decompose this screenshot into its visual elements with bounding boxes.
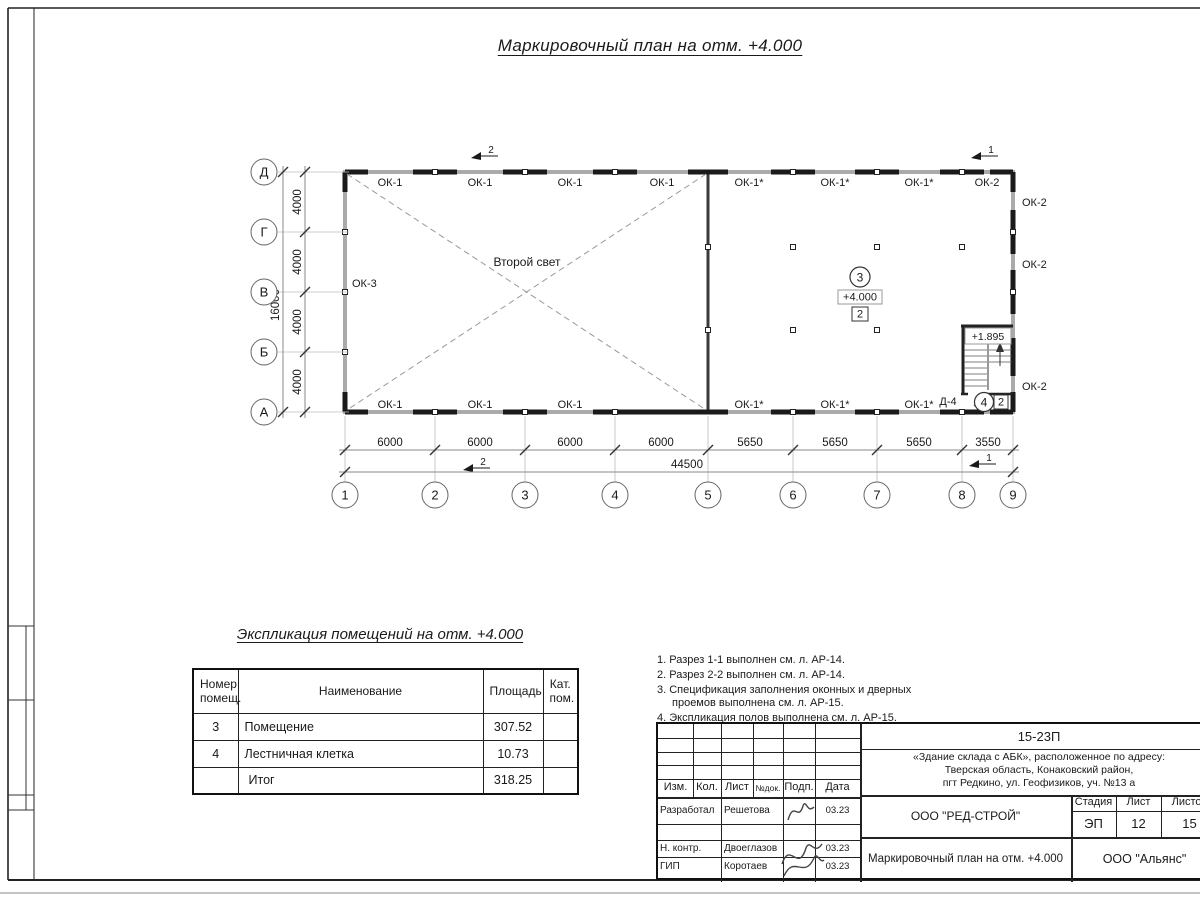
dim-label: 6000	[467, 437, 493, 449]
page-title: Маркировочный план на отм. +4.000	[350, 36, 950, 56]
tb-stage-value: ЭП	[1071, 811, 1116, 837]
axis-label: А	[260, 405, 269, 420]
tb-col-list: Лист	[721, 779, 753, 797]
dim-total-label: 44500	[671, 459, 703, 471]
cell-cat	[543, 713, 578, 740]
window-labels: ОК-1 ОК-1 ОК-1 ОК-1 ОК-1* ОК-1* ОК-1* ОК…	[352, 177, 1047, 411]
axis-label: 4	[611, 488, 618, 503]
left-dimensions: 4000 4000 4000 4000 16000 Д Г В Б А	[251, 159, 349, 425]
dim-label: 6000	[377, 437, 403, 449]
window-label: ОК-1	[468, 177, 493, 189]
note-item: 2. Разрез 2-2 выполнен см. л. АР-14.	[657, 669, 921, 683]
tb-col-podp: Подп.	[783, 779, 815, 797]
window-label: ОК-1	[558, 177, 583, 189]
signature	[778, 836, 826, 882]
section-mark-1-top: 1	[971, 145, 998, 160]
tb-sheet-label: Лист	[1116, 795, 1161, 811]
tb-contractor: ООО "Альянс"	[1071, 837, 1200, 882]
explication-table: Номер помещ. Наименование Площадь Кат. п…	[192, 668, 579, 795]
window-label: ОК-1*	[734, 399, 764, 411]
svg-text:2: 2	[480, 457, 486, 468]
cell-cat	[543, 767, 578, 794]
window-label: ОК-1	[558, 399, 583, 411]
tb-sheets-label: Листов	[1161, 795, 1200, 811]
row-axis-bubbles: Д Г В Б А	[251, 159, 277, 425]
svg-text:1: 1	[988, 145, 994, 156]
drawing-sheet: Второй свет ОК-1 ОК-1 ОК-1 ОК-1 ОК-1* ОК…	[0, 0, 1200, 900]
cell-number	[193, 767, 238, 794]
column-markers	[343, 170, 1016, 415]
col-header-cat: Кат. пом.	[543, 669, 578, 713]
cell-area: 10.73	[483, 740, 543, 767]
tb-sheet-value: 12	[1116, 811, 1161, 837]
room-elevation: +4.000	[843, 292, 877, 304]
room-number: 4	[981, 396, 988, 410]
dim-label: 4000	[292, 369, 304, 395]
note-item: 1. Разрез 1-1 выполнен см. л. АР-14.	[657, 654, 921, 668]
notes-list: 1. Разрез 1-1 выполнен см. л. АР-14. 2. …	[657, 654, 921, 727]
dim-label: 6000	[648, 437, 674, 449]
dim-label: 3550	[975, 437, 1001, 449]
window-label: ОК-3	[352, 278, 377, 290]
dim-label: 4000	[292, 189, 304, 215]
dim-label: 5650	[822, 437, 848, 449]
svg-text:2: 2	[488, 145, 494, 156]
room-number: 3	[857, 271, 864, 285]
tb-role-0: Разработал	[660, 797, 721, 824]
section-mark-2-top: 2	[471, 145, 498, 160]
window-label: ОК-1	[378, 399, 403, 411]
axis-label: Г	[260, 225, 267, 240]
table-row: Итог 318.25	[193, 767, 578, 794]
dim-label: 6000	[557, 437, 583, 449]
tb-object-line3: пгт Редкино, ул. Геофизиков, уч. №13 а	[860, 777, 1200, 790]
col-header-area: Площадь	[483, 669, 543, 713]
axis-label: 6	[789, 488, 796, 503]
tb-sheets-value: 15	[1161, 811, 1200, 837]
tb-name-1: Двоеглазов	[724, 840, 783, 857]
building-walls	[343, 170, 1015, 414]
cell-name: Помещение	[238, 713, 483, 740]
tb-doc-number: 15-23П	[860, 724, 1200, 749]
axis-label: 8	[958, 488, 965, 503]
second-light-label: Второй свет	[493, 255, 561, 269]
axis-label: В	[260, 285, 269, 300]
tb-object-line2: Тверская область, Конаковский район,	[860, 764, 1200, 777]
cell-area: 318.25	[483, 767, 543, 794]
window-label: ОК-2	[1022, 259, 1047, 271]
col-axis-bubbles: 1 2 3 4 5 6 7 8 9	[332, 482, 1026, 508]
tb-col-ndok: №док.	[753, 779, 783, 797]
tb-company: ООО "РЕД-СТРОЙ"	[860, 795, 1071, 837]
room3-marker: 3 +4.000 2	[838, 267, 882, 321]
note-item: 3. Спецификация заполнения оконных и две…	[657, 684, 921, 712]
axis-label: 1	[341, 488, 348, 503]
window-label: ОК-1	[650, 177, 675, 189]
dim-label: 5650	[906, 437, 932, 449]
window-label: ОК-1*	[734, 177, 764, 189]
cell-name: Итог	[238, 767, 483, 794]
section-marks: 2 1 2 1	[463, 145, 998, 472]
tb-stage-label: Стадия	[1071, 795, 1116, 811]
cell-cat	[543, 740, 578, 767]
table-row: 4 Лестничная клетка 10.73	[193, 740, 578, 767]
second-light-diagonals	[347, 174, 706, 410]
dim-label: 4000	[292, 249, 304, 275]
window-label: ОК-2	[1022, 381, 1047, 393]
section-mark-2-bottom: 2	[463, 457, 490, 472]
table-row: 3 Помещение 307.52	[193, 713, 578, 740]
axis-label: 3	[521, 488, 528, 503]
axis-label: 9	[1009, 488, 1016, 503]
tb-role-2: ГИП	[660, 857, 721, 877]
cell-number: 3	[193, 713, 238, 740]
tb-col-kol: Кол.	[693, 779, 721, 797]
axis-label: Д	[260, 165, 269, 180]
window-label: ОК-1*	[820, 399, 850, 411]
window-label: ОК-1	[378, 177, 403, 189]
tb-col-data: Дата	[815, 779, 860, 797]
signature	[786, 798, 816, 824]
cell-area: 307.52	[483, 713, 543, 740]
section-mark-1-bottom: 1	[969, 453, 996, 468]
title-block: Изм. Кол. Лист №док. Подп. Дата Разработ…	[656, 722, 1200, 880]
svg-text:1: 1	[986, 453, 992, 464]
room-category: 2	[998, 397, 1004, 409]
window-label: ОК-2	[1022, 197, 1047, 209]
bottom-dimensions: 6000 6000 6000 6000 5650 5650 5650 3550 …	[332, 416, 1026, 508]
stair-elevation: +1.895	[972, 331, 1005, 343]
window-label: ОК-1	[468, 399, 493, 411]
cell-number: 4	[193, 740, 238, 767]
tb-drawing-title: Маркировочный план на отм. +4.000	[860, 837, 1071, 882]
axis-label: 5	[704, 488, 711, 503]
dim-label: 5650	[737, 437, 763, 449]
window-label: ОК-1*	[904, 177, 934, 189]
dim-label: 4000	[292, 309, 304, 335]
tb-object-line1: «Здание склада с АБК», расположенное по …	[860, 751, 1200, 764]
tb-role-1: Н. контр.	[660, 840, 721, 857]
tb-name-2: Коротаев	[724, 857, 783, 877]
tb-col-izm: Изм.	[658, 779, 693, 797]
side-stamp-boxes	[8, 626, 34, 810]
window-label: ОК-1*	[904, 399, 934, 411]
door-label: Д-4	[939, 396, 956, 408]
room4-marker: Д-4 4 2	[939, 393, 1008, 412]
col-header-name: Наименование	[238, 669, 483, 713]
room-category: 2	[857, 309, 863, 321]
windows-right-bars	[345, 172, 1013, 412]
col-header-number: Номер помещ.	[193, 669, 238, 713]
explication-title: Экспликация помещений на отм. +4.000	[200, 626, 560, 643]
axis-label: 2	[431, 488, 438, 503]
axis-label: Б	[260, 345, 269, 360]
window-label: ОК-2	[975, 177, 1000, 189]
axis-label: 7	[873, 488, 880, 503]
window-label: ОК-1*	[820, 177, 850, 189]
tb-date-0: 03.23	[815, 797, 860, 824]
cell-name: Лестничная клетка	[238, 740, 483, 767]
tb-name-0: Решетова	[724, 797, 783, 824]
